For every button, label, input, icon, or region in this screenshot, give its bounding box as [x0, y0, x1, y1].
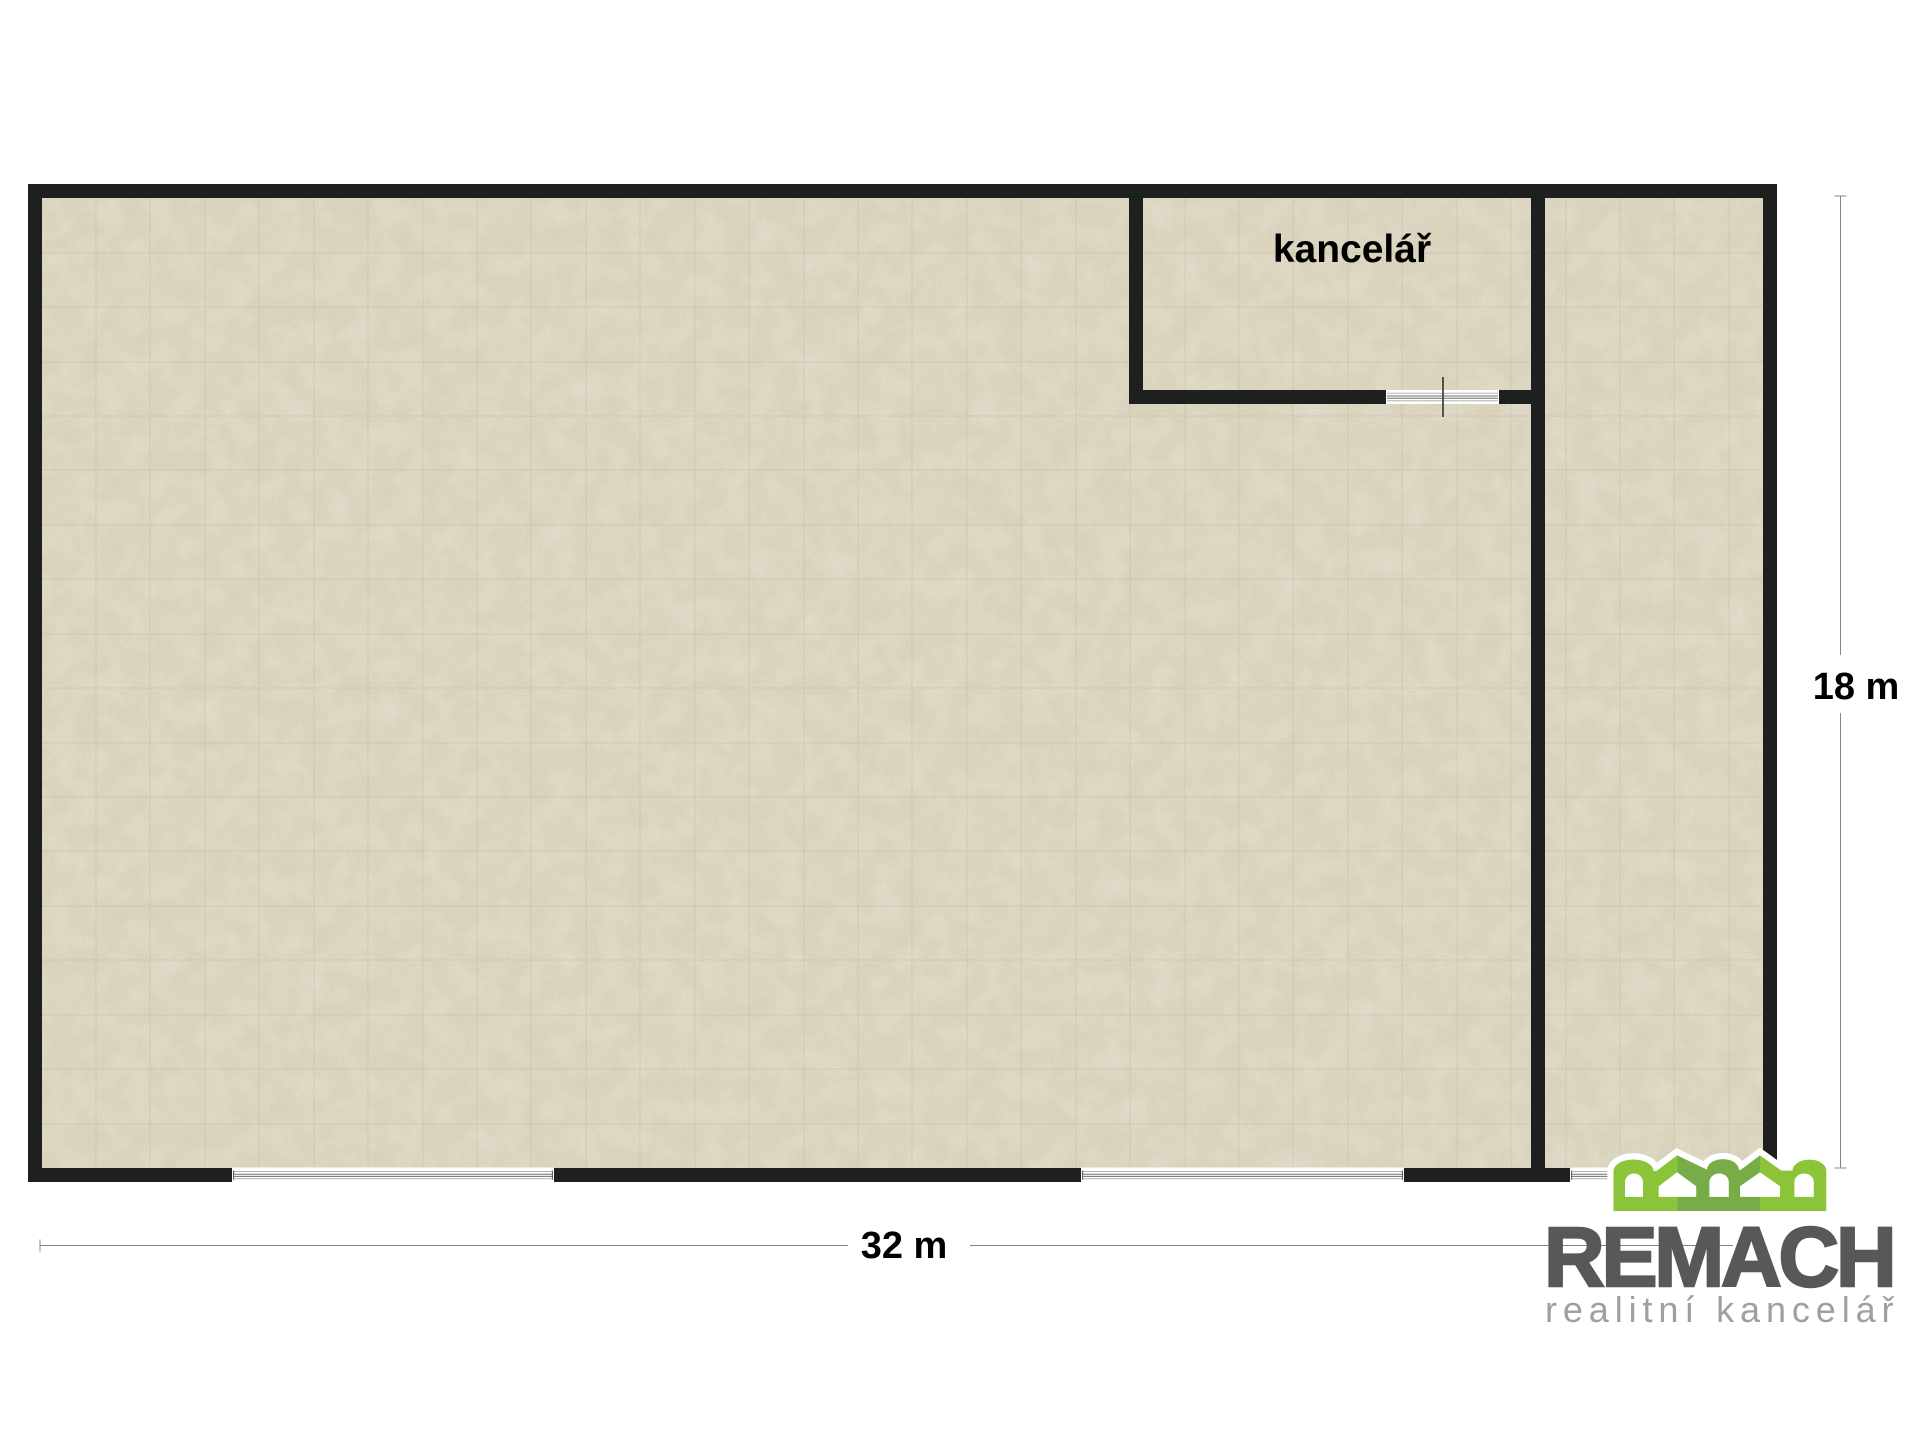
svg-text:32 m: 32 m [861, 1225, 948, 1267]
svg-text:realitní kancelář: realitní kancelář [1545, 1289, 1899, 1330]
svg-text:18 m: 18 m [1813, 666, 1900, 708]
svg-text:kancelář: kancelář [1273, 228, 1432, 271]
